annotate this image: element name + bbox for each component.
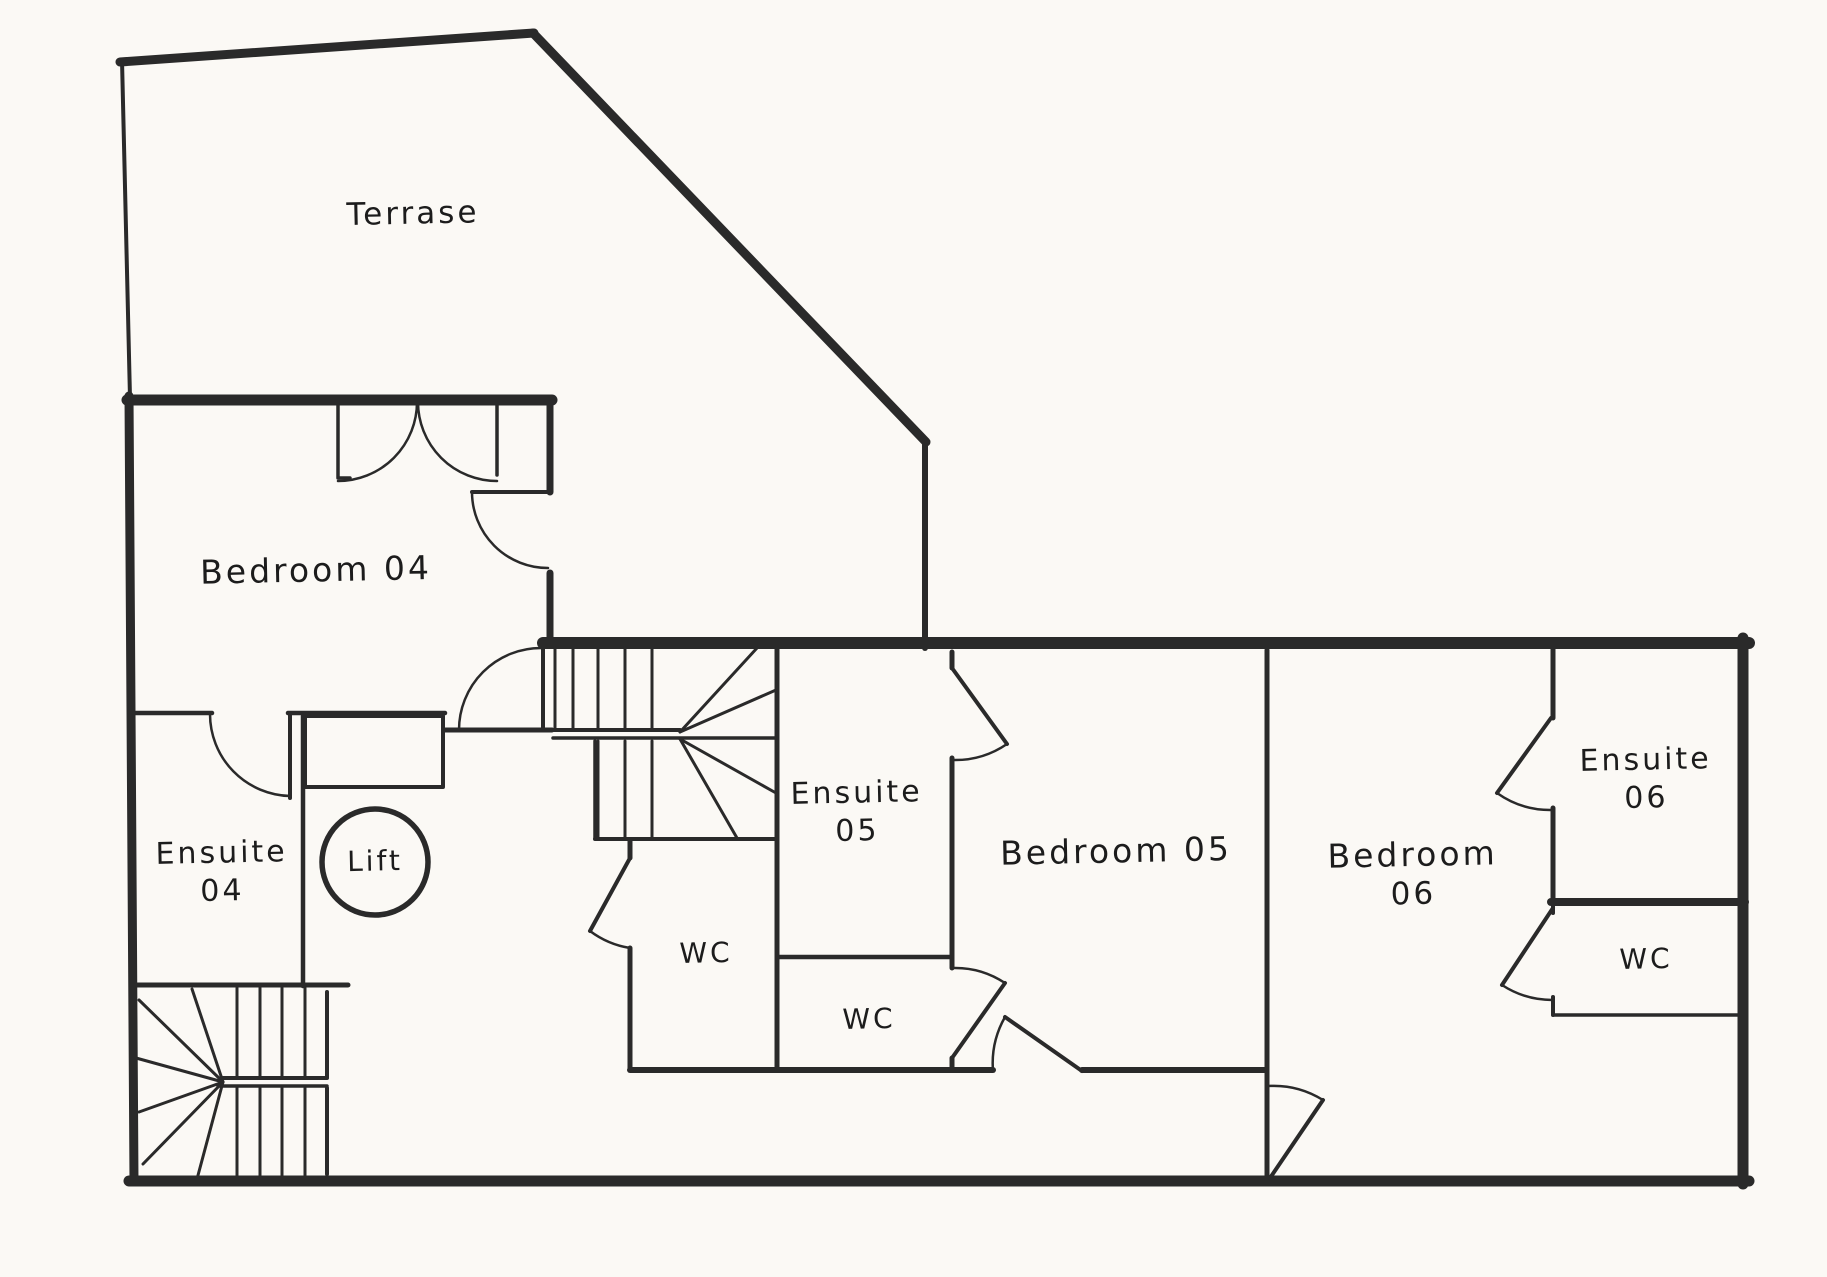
label-wc06: WC xyxy=(1619,941,1673,977)
label-ensuite04-line2: 04 xyxy=(156,871,289,911)
closet-box xyxy=(305,716,443,787)
label-bedroom06-line2: 06 xyxy=(1328,873,1499,915)
label-bedroom05: Bedroom 05 xyxy=(1000,828,1233,874)
floorplan-canvas: Terrase Bedroom 04 Ensuite 04 Lift WC En… xyxy=(0,0,1827,1277)
staircase-upper xyxy=(550,647,777,839)
door-wc06-arc xyxy=(1502,985,1553,1000)
door-ensuite06-leaf xyxy=(1497,718,1551,793)
label-wc05: WC xyxy=(842,1001,896,1037)
label-ensuite05: Ensuite 05 xyxy=(790,773,924,851)
door-bedroom04-side-arc xyxy=(472,492,548,568)
label-ensuite04-line1: Ensuite xyxy=(155,833,288,873)
wall-left-outer xyxy=(129,396,134,1182)
label-ensuite05-line2: 05 xyxy=(791,811,924,851)
label-ensuite06: Ensuite 06 xyxy=(1579,740,1713,818)
door-hallwc-arc xyxy=(590,931,630,948)
door-bedroom05-arc xyxy=(993,1017,1005,1071)
door-wc05-arc xyxy=(952,968,1005,983)
label-ensuite06-line1: Ensuite xyxy=(1579,740,1712,780)
label-hall-wc: WC xyxy=(679,935,733,971)
label-bedroom04: Bedroom 04 xyxy=(200,547,433,593)
door-hallwc-leaf xyxy=(590,858,630,931)
label-bedroom06-line1: Bedroom xyxy=(1327,832,1498,877)
label-ensuite05-line1: Ensuite xyxy=(790,773,923,813)
door-wc06-leaf xyxy=(1502,908,1553,985)
door-bedroom04-double-left-arc xyxy=(338,402,417,481)
door-bedroom06-arc xyxy=(1268,1086,1323,1100)
floorplan-drawing xyxy=(0,0,1827,1277)
staircase-lower-left xyxy=(136,988,327,1179)
door-wc05-leaf xyxy=(952,983,1005,1058)
label-terrace: Terrase xyxy=(346,193,480,235)
door-hall-arc xyxy=(459,648,541,730)
label-ensuite06-line2: 06 xyxy=(1580,778,1713,818)
wall-terrace-top xyxy=(120,33,534,62)
door-bedroom05-leaf xyxy=(1005,1017,1082,1071)
door-bedroom06-leaf xyxy=(1270,1100,1323,1178)
door-bedroom04-double-left-leaf xyxy=(338,404,350,478)
label-bedroom06: Bedroom 06 xyxy=(1327,832,1499,916)
wall-terrace-left xyxy=(122,60,130,398)
door-bedroom04-double-right-arc xyxy=(418,402,497,481)
label-lift: Lift xyxy=(347,843,403,879)
door-ensuite05-leaf xyxy=(952,668,1007,744)
wall-terrace-diagonal xyxy=(533,33,926,442)
label-ensuite04: Ensuite 04 xyxy=(155,833,289,911)
door-ensuite05-arc xyxy=(952,744,1007,760)
door-ensuite06-arc xyxy=(1497,793,1551,810)
door-ensuite04-arc xyxy=(210,714,290,796)
stair-upper-winder xyxy=(680,648,757,732)
stair-upper-winder xyxy=(680,690,776,732)
